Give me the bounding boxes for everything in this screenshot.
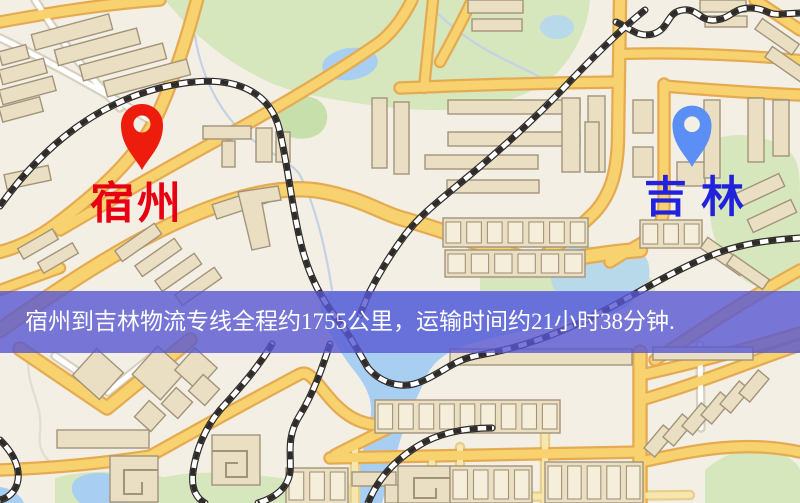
destination-city-label: 吉林	[644, 177, 758, 220]
route-info-banner: 宿州到吉林物流专线全程约1755公里，运输时间约21小时38分钟.	[0, 291, 800, 353]
origin-city-label: 宿州	[90, 182, 184, 226]
map-image	[0, 0, 800, 503]
map-canvas[interactable]: 宿州 吉林 宿州到吉林物流专线全程约1755公里，运输时间约21小时38分钟.	[0, 0, 800, 503]
route-info-text: 宿州到吉林物流专线全程约1755公里，运输时间约21小时38分钟.	[25, 309, 675, 334]
